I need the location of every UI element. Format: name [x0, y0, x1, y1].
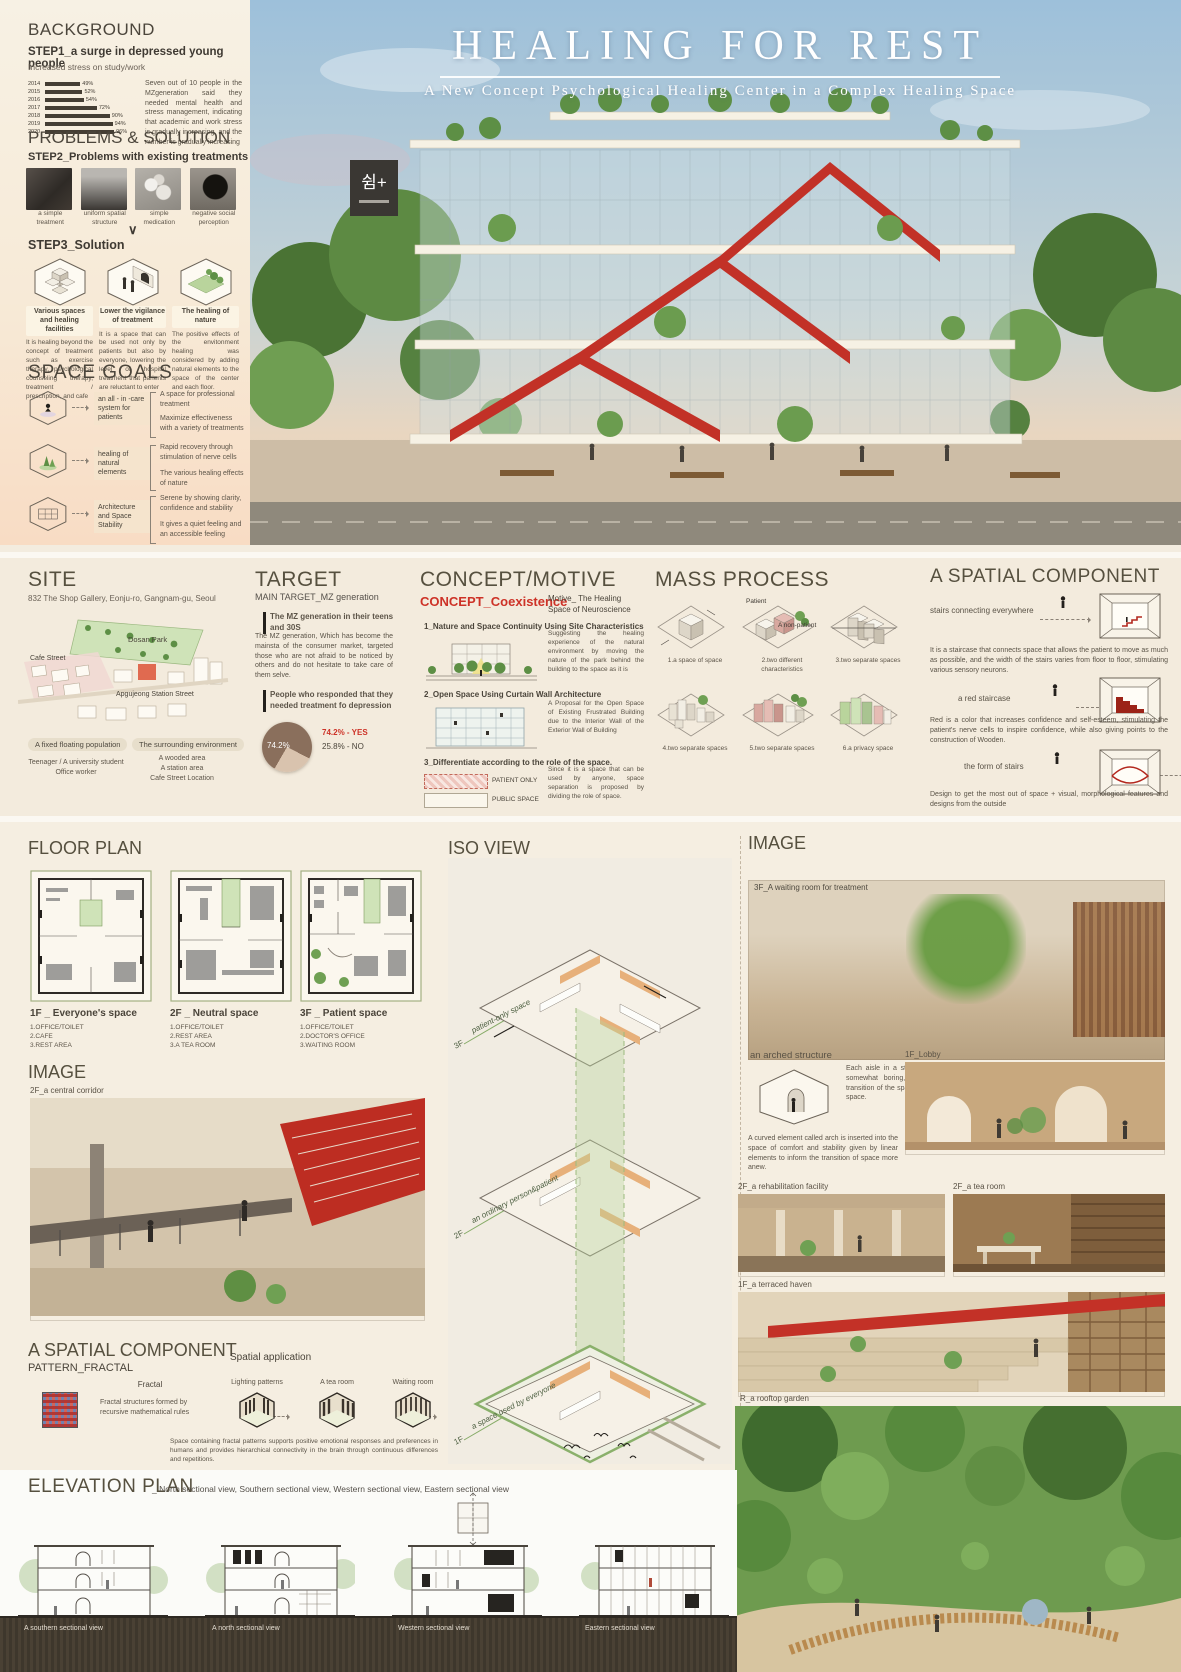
- motive-label: Motive_ The Healing Space of Neuroscienc…: [548, 594, 644, 616]
- left-panel: BACKGROUND STEP1_a surge in depressed yo…: [0, 0, 250, 545]
- bar-year: 2018: [28, 113, 43, 119]
- stair-form-room-icon: [1098, 748, 1162, 796]
- map-cafe-label: Cafe Street: [30, 655, 65, 662]
- mass-step-label: 4.two separate spaces: [655, 745, 735, 754]
- floorplan-2f: [170, 870, 292, 1007]
- problem-label: simple medication: [135, 210, 184, 228]
- app-label-tearoom: A tea room: [310, 1378, 364, 1388]
- goal-point: A space for professional treatment: [160, 390, 244, 410]
- spatial-application-title: Spatial application: [230, 1352, 311, 1363]
- app-label-waiting: Waiting room: [386, 1378, 440, 1388]
- map-park-label: Dosan Park: [128, 635, 167, 644]
- mass-step-6: 6.a privacy space: [828, 690, 908, 754]
- site-tag-environment: The surrounding environment: [132, 738, 244, 751]
- floorplan-3f-title: 3F _ Patient space: [300, 1008, 387, 1019]
- floorplan-1f: [30, 870, 152, 1007]
- goal-point: The various healing effects of nature: [160, 469, 244, 489]
- bar-year: 2017: [28, 105, 43, 111]
- goal-point: Maximize effectiveness with a variety of…: [160, 414, 244, 434]
- spatial-row3-body: Design to get the most out of space + vi…: [930, 790, 1168, 810]
- target-point1: The MZ generation in their teens and 30S: [263, 612, 400, 634]
- open-room-icon: [105, 258, 161, 306]
- bar: [45, 122, 113, 127]
- rooftop-caption: R_a rooftop garden: [740, 1394, 809, 1403]
- terraced-caption: 1F_a terraced haven: [738, 1280, 812, 1289]
- problem-items: a simple treatment uniform spatial struc…: [26, 168, 238, 228]
- mass-annotation-nonpatient: A non-patient: [778, 622, 816, 631]
- tearoom-caption: 2F_a tea room: [953, 1182, 1005, 1191]
- target-heading: TARGET: [255, 568, 342, 592]
- app-label-lighting: Lighting patterns: [228, 1378, 286, 1388]
- architecture-presentation-board: HEALING FOR REST A New Concept Psycholog…: [0, 0, 1181, 1672]
- site-map: Dosan Park Cafe Street Apgujeong Station…: [18, 610, 232, 737]
- bar: [45, 106, 97, 111]
- waiting-room-caption: 3F_A waiting room for treatment: [754, 883, 868, 892]
- dashed-arrow-icon: [72, 460, 88, 461]
- space-goal-row: an all - in -care system for patients A …: [28, 390, 242, 440]
- mass-step-label: 1.a space of space: [655, 657, 735, 666]
- uniform-structure-photo: [81, 168, 127, 210]
- fractal-pattern-swatch: [42, 1392, 78, 1428]
- tree-in-render: [906, 894, 1026, 1004]
- background-heading: BACKGROUND: [28, 20, 155, 40]
- site-note-environment: A wooded area A station area Cafe Street…: [136, 754, 228, 783]
- rooftop-render: [735, 1406, 1181, 1672]
- mass-step-3: 3.two separate spaces: [828, 602, 908, 666]
- solution-title: Various spaces and healing facilities: [26, 306, 93, 336]
- concept-label: CONCEPT_Coexistence: [420, 594, 567, 609]
- goal-label: Architecture and Space Stability: [94, 500, 150, 533]
- dashed-arrow-icon: [1040, 619, 1090, 620]
- concept-item2-body: A Proposal for the Open Space of Existin…: [548, 700, 644, 736]
- bar: [45, 82, 80, 87]
- elevation-caption-north: A north sectional view: [212, 1624, 280, 1634]
- goal-bracket: [150, 496, 156, 544]
- chevron-down-icon: ∨: [128, 222, 138, 238]
- space-goal-row: healing of natural elements Rapid recove…: [28, 443, 242, 493]
- bar-value: 72%: [99, 105, 110, 111]
- spaces-cubes-icon: [32, 258, 88, 306]
- poster-title: HEALING FOR REST: [395, 22, 1045, 70]
- lattice-wall: [1073, 902, 1165, 1037]
- bar: [45, 98, 84, 103]
- patient-only-label: PATIENT ONLY: [492, 777, 537, 786]
- mass-diagram-5: [740, 690, 816, 740]
- pie-yes-label: 74.2% - YES: [322, 728, 368, 739]
- iso-view-diagram: patient-only space 3F an ordinary person…: [448, 858, 732, 1464]
- lobby-render: [905, 1062, 1165, 1155]
- bar-year: 2015: [28, 89, 43, 95]
- mass-diagram-3: [828, 602, 900, 652]
- fractal-desc: Fractal structures formed by recursive m…: [100, 1398, 200, 1418]
- floorplan-1f-title: 1F _ Everyone's space: [30, 1008, 137, 1019]
- floorplan-1f-rooms: 1.OFFICE/TOILET 2.CAFE 3.REST AREA: [30, 1024, 84, 1051]
- problem-label: a simple treatment: [26, 210, 75, 228]
- mass-diagram-4: [655, 690, 727, 740]
- spatial-heading: A SPATIAL COMPONENT: [930, 566, 1160, 588]
- dashed-arrow-icon: [72, 513, 88, 514]
- mass-step-label: 2.two different characteristics: [740, 657, 824, 675]
- step3-title: STEP3_Solution: [28, 238, 125, 252]
- spatial-row1-body: It is a staircase that connects space th…: [930, 646, 1168, 675]
- building-sign-text: 쉼+: [350, 168, 398, 193]
- fractal-body: Space containing fractal patterns suppor…: [170, 1438, 438, 1465]
- fractal-subheading: PATTERN_FRACTAL: [28, 1362, 133, 1374]
- person-icon: [1052, 752, 1062, 765]
- image-right-heading: IMAGE: [748, 833, 806, 854]
- map-station-label: Apgujeong Station Street: [116, 691, 194, 698]
- goal-label: healing of natural elements: [94, 447, 150, 480]
- goal-point: It gives a quiet feeling and an accessib…: [160, 520, 244, 540]
- concept-item1-diagram: [424, 636, 539, 687]
- public-space-cell: [424, 793, 488, 808]
- hero-render: HEALING FOR REST A New Concept Psycholog…: [250, 0, 1181, 545]
- patient-only-cell: [424, 774, 488, 789]
- concept-item2-diagram: [424, 704, 539, 757]
- space-goal-row: Architecture and Space Stability Serene …: [28, 496, 242, 544]
- site-tag-population: A fixed floating population: [28, 738, 127, 751]
- medication-photo: [135, 168, 181, 210]
- bar-value: 90%: [112, 113, 123, 119]
- problem-label: uniform spatial structure: [81, 210, 130, 228]
- solution-column: The healing of nature The positive effec…: [172, 258, 239, 402]
- mass-diagram-1: [655, 602, 727, 652]
- public-space-label: PUBLIC SPACE: [492, 796, 539, 805]
- solution-title: The healing of nature: [172, 306, 239, 328]
- mass-annotation-patient: Patient: [746, 598, 766, 607]
- target-body1: The MZ generation, Which has become the …: [255, 632, 393, 681]
- building-sign: 쉼+: [350, 160, 398, 216]
- bar-value: 94%: [115, 121, 126, 127]
- goal-bracket: [150, 445, 156, 491]
- person-icon: [1050, 684, 1060, 697]
- bar: [45, 90, 82, 95]
- iso-heading: ISO VIEW: [448, 838, 530, 859]
- concept-item3-body: Since it is a space that can be used by …: [548, 766, 644, 802]
- pie-no-label: 25.8% - NO: [322, 742, 364, 753]
- elevation-caption-east: Eastern sectional view: [585, 1624, 655, 1634]
- problem-label: negative social perception: [190, 210, 239, 228]
- spatial-row2-label: a red staircase: [958, 694, 1010, 705]
- bar-value: 54%: [86, 97, 97, 103]
- hero-title-block: HEALING FOR REST A New Concept Psycholog…: [395, 22, 1045, 100]
- concept-item1-body: Suggesting the healing experience of the…: [548, 630, 644, 675]
- corridor-render: [30, 1098, 425, 1321]
- rehab-caption: 2F_a rehabilitation facility: [738, 1182, 828, 1191]
- floorplan-2f-title: 2F _ Neutral space: [170, 1008, 258, 1019]
- spatial-row1-label: stairs connecting everywhere: [930, 606, 1034, 617]
- floorplan-2f-rooms: 1.OFFICE/TOILET 2.REST AREA 3.A TEA ROOM: [170, 1024, 224, 1051]
- tea-room-icon: [310, 1390, 364, 1430]
- mass-step-2: 2.two different characteristics Patient …: [740, 602, 824, 675]
- arched-body2: A curved element called arch is inserted…: [748, 1134, 898, 1173]
- mass-step-5: 5.two separate spaces: [740, 690, 824, 754]
- mass-diagram-6: [828, 690, 900, 740]
- target-point2: People who responded that they needed tr…: [263, 690, 396, 712]
- dashed-arrow-icon: [72, 407, 88, 408]
- image-left-heading: IMAGE: [28, 1062, 86, 1083]
- step2-title: STEP2_Problems with existing treatments: [28, 151, 248, 163]
- elevation-caption-west: Western sectional view: [398, 1624, 469, 1634]
- concept-heading: CONCEPT/MOTIVE: [420, 568, 616, 592]
- spatial-row2-body: Red is a color that increases confidence…: [930, 716, 1168, 745]
- bar-year: 2014: [28, 81, 43, 87]
- floorplan-3f-rooms: 1.OFFICE/TOILET 2.DOCTOR'S OFFICE 3.WAIT…: [300, 1024, 365, 1051]
- arch-room-icon: [758, 1068, 830, 1126]
- rehab-render: [738, 1194, 945, 1277]
- mass-step-label: 6.a privacy space: [828, 745, 908, 754]
- elevation-subtitle: _ North sectional view, Southern section…: [152, 1484, 582, 1494]
- mass-heading: MASS PROCESS: [655, 568, 829, 592]
- goal-label: an all - in -care system for patients: [94, 392, 150, 425]
- mass-step-4: 4.two separate spaces: [655, 690, 735, 754]
- spatial-row3-label: the form of stairs: [964, 762, 1024, 773]
- waiting-room-render: 3F_A waiting room for treatment: [748, 880, 1165, 1060]
- goal-point: Rapid recovery through stimulation of ne…: [160, 443, 244, 463]
- bar-value: 52%: [84, 89, 95, 95]
- floorplan-heading: FLOOR PLAN: [28, 838, 142, 859]
- mass-step-label: 5.two separate spaces: [740, 745, 824, 754]
- pie-percent-label: 74.2%: [267, 741, 290, 750]
- target-subheading: MAIN TARGET_MZ generation: [255, 592, 379, 602]
- lobby-caption: 1F_Lobby: [905, 1050, 941, 1059]
- mass-step-label: 3.two separate spaces: [828, 657, 908, 666]
- tearoom-render: [953, 1194, 1165, 1277]
- corridor-caption: 2F_a central corridor: [30, 1086, 104, 1095]
- bar-year: 2019: [28, 121, 43, 127]
- site-heading: SITE: [28, 568, 77, 592]
- building-sign-line: [359, 200, 389, 203]
- mass-step-1: 1.a space of space: [655, 602, 735, 666]
- bar-year: 2016: [28, 97, 43, 103]
- floorplan-3f: [300, 870, 422, 1007]
- concept-item3-diagram: PATIENT ONLY PUBLIC SPACE: [424, 774, 542, 808]
- solution-body: The positive effects of the envitonment …: [172, 331, 239, 394]
- solution-title: Lower the vigilance of treatment: [99, 306, 166, 328]
- bar: [45, 114, 110, 119]
- problems-heading: PROBLEMS & SOLUTION: [28, 128, 230, 148]
- terraced-render: [738, 1292, 1165, 1397]
- elevation-caption-south: A southern sectional view: [24, 1624, 103, 1634]
- bar-value: 49%: [82, 81, 93, 87]
- title-underline: [440, 76, 1000, 78]
- problem-item: negative social perception: [190, 168, 239, 228]
- space-goals-heading: SPACE GOALS: [28, 362, 173, 384]
- lighting-pattern-room-icon: [230, 1390, 284, 1430]
- problem-item: a simple treatment: [26, 168, 75, 228]
- problem-item: uniform spatial structure: [81, 168, 130, 228]
- social-perception-photo: [190, 168, 236, 210]
- arched-structure-label: an arched structure: [750, 1050, 832, 1061]
- simple-treatment-photo: [26, 168, 72, 210]
- site-address: 832 The Shop Gallery, Eonju-ro, Gangnam-…: [28, 594, 233, 605]
- birds-icon: [560, 1428, 650, 1464]
- nature-healing-icon: [28, 443, 68, 479]
- problem-item: simple medication: [135, 168, 184, 228]
- fractal-label: Fractal: [100, 1380, 200, 1391]
- goal-bracket: [150, 392, 156, 438]
- fractal-heading: A SPATIAL COMPONENT: [28, 1340, 237, 1361]
- patient-care-icon: [28, 390, 68, 426]
- goal-point: Serene by showing clarity, confidence an…: [160, 494, 244, 514]
- depression-pie-chart: 74.2%: [262, 722, 312, 772]
- architecture-stability-icon: [28, 496, 68, 532]
- poster-subtitle: A New Concept Psychological Healing Cent…: [395, 83, 1045, 100]
- waiting-room-icon: [386, 1390, 440, 1430]
- step1-subtitle: Increased stress on study/work: [28, 62, 145, 72]
- stairs-room-icon: [1098, 592, 1162, 640]
- nature-floor-icon: [178, 258, 234, 306]
- person-icon: [1058, 596, 1068, 609]
- site-note-population: Teenager / A university student Office w…: [28, 758, 124, 778]
